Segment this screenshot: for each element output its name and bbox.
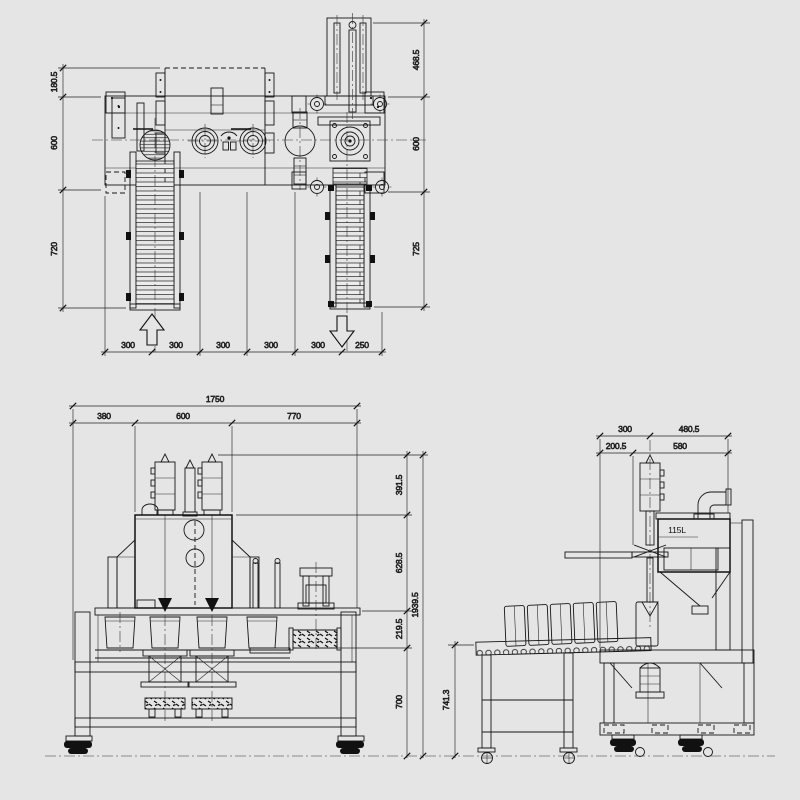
- dim-label: 300: [618, 424, 632, 434]
- conveyor-legs: [478, 653, 577, 764]
- dim-label: 219.5: [394, 618, 404, 639]
- flanged-head: [188, 124, 222, 158]
- top-view-right-dimensions: 468.5 600 725: [373, 19, 430, 311]
- dim-label: 480.5: [679, 424, 700, 434]
- leveling-foot-icon: [482, 753, 493, 764]
- front-view-top-dimensions: 1750 380 600 770: [69, 394, 361, 660]
- dim-label: 200.5: [606, 441, 627, 451]
- weigh-mechanism: [188, 615, 236, 722]
- pail-row: [105, 612, 277, 652]
- dim-label: 580: [673, 441, 687, 451]
- valve-glyph: [221, 132, 237, 150]
- side-view: 115L: [441, 424, 754, 764]
- dim-label: 1939.5: [410, 592, 420, 618]
- agitator-plan: [330, 121, 370, 161]
- sight-glass: [184, 520, 204, 540]
- caster-wheel: [336, 736, 364, 754]
- caster-wheel: [610, 735, 645, 757]
- engineering-drawing-canvas: 180.5 600 720 468.5 600 725 300 300 300 …: [0, 0, 800, 800]
- dim-label: 725: [411, 242, 421, 256]
- dim-label: 300: [311, 340, 325, 350]
- tank-capacity-label: 115L: [668, 525, 686, 535]
- elbow-pipe: [694, 489, 731, 519]
- dim-label: 720: [49, 242, 59, 256]
- roller-bed: [336, 187, 364, 303]
- dim-label: 600: [176, 411, 190, 421]
- weigh-mechanism: [141, 615, 189, 722]
- tank-front: [108, 515, 259, 608]
- agitator-motor: [183, 460, 197, 516]
- holding-tank-side: 115L: [656, 489, 753, 663]
- leveling-foot-icon: [564, 753, 575, 764]
- pump-plan: [285, 108, 315, 190]
- dim-label: 468.5: [411, 49, 421, 70]
- dim-label: 741.3: [441, 689, 451, 710]
- dim-label: 628.5: [394, 552, 404, 573]
- pail: [247, 617, 277, 648]
- dim-label: 700: [394, 695, 404, 709]
- rear-post: [742, 520, 753, 663]
- caster-wheel: [678, 735, 713, 757]
- filling-heads-plan: [188, 124, 270, 158]
- filling-valve-side: [565, 440, 668, 628]
- lift-cylinder-plan: [318, 13, 380, 125]
- gear-icon: [308, 95, 327, 114]
- dim-label: 1750: [206, 394, 225, 404]
- front-view: 1750 380 600 770 391.5 628.5 219.5 700 1…: [64, 394, 428, 759]
- dim-label: 391.5: [394, 474, 404, 495]
- handhole-cover: [142, 504, 158, 515]
- dim-label: 770: [287, 411, 301, 421]
- outfeed-arrow-icon: [330, 316, 354, 347]
- dim-label: 600: [49, 136, 59, 150]
- gear-icon: [373, 178, 392, 197]
- infeed-conveyor-plan: [126, 118, 184, 352]
- outfeed-conveyor-plan: [325, 112, 375, 352]
- discharge-pump: [636, 663, 664, 698]
- filling-valve: [198, 454, 222, 612]
- dim-label: 300: [169, 340, 183, 350]
- dim-label: 300: [121, 340, 135, 350]
- caster-wheel: [64, 736, 92, 754]
- spider-mount: [565, 545, 668, 558]
- roller-conveyor-side: [476, 638, 651, 656]
- gear-icon: [308, 178, 327, 197]
- dim-label: 300: [264, 340, 278, 350]
- dim-label: 180.5: [49, 71, 59, 92]
- machine-frame-side: [600, 650, 754, 735]
- conveyor-front: [95, 628, 341, 658]
- side-bracket-plan: [112, 98, 144, 151]
- dim-label: 300: [216, 340, 230, 350]
- dim-label: 600: [411, 137, 421, 151]
- outfeed-conveyor-end: [293, 630, 337, 648]
- guide-rods: [253, 559, 280, 609]
- funnel-outlet: [692, 606, 708, 614]
- sight-port: [211, 88, 223, 114]
- side-view-height-dimension: 741.3: [441, 641, 474, 759]
- filling-valve: [151, 454, 175, 612]
- dim-label: 250: [355, 340, 369, 350]
- top-view: 180.5 600 720 468.5 600 725 300 300 300 …: [49, 13, 430, 356]
- dim-label: 380: [97, 411, 111, 421]
- three-view-machine-drawing: 180.5 600 720 468.5 600 725 300 300 300 …: [0, 0, 800, 800]
- pail: [105, 612, 135, 652]
- infeed-arrow-icon: [140, 314, 164, 345]
